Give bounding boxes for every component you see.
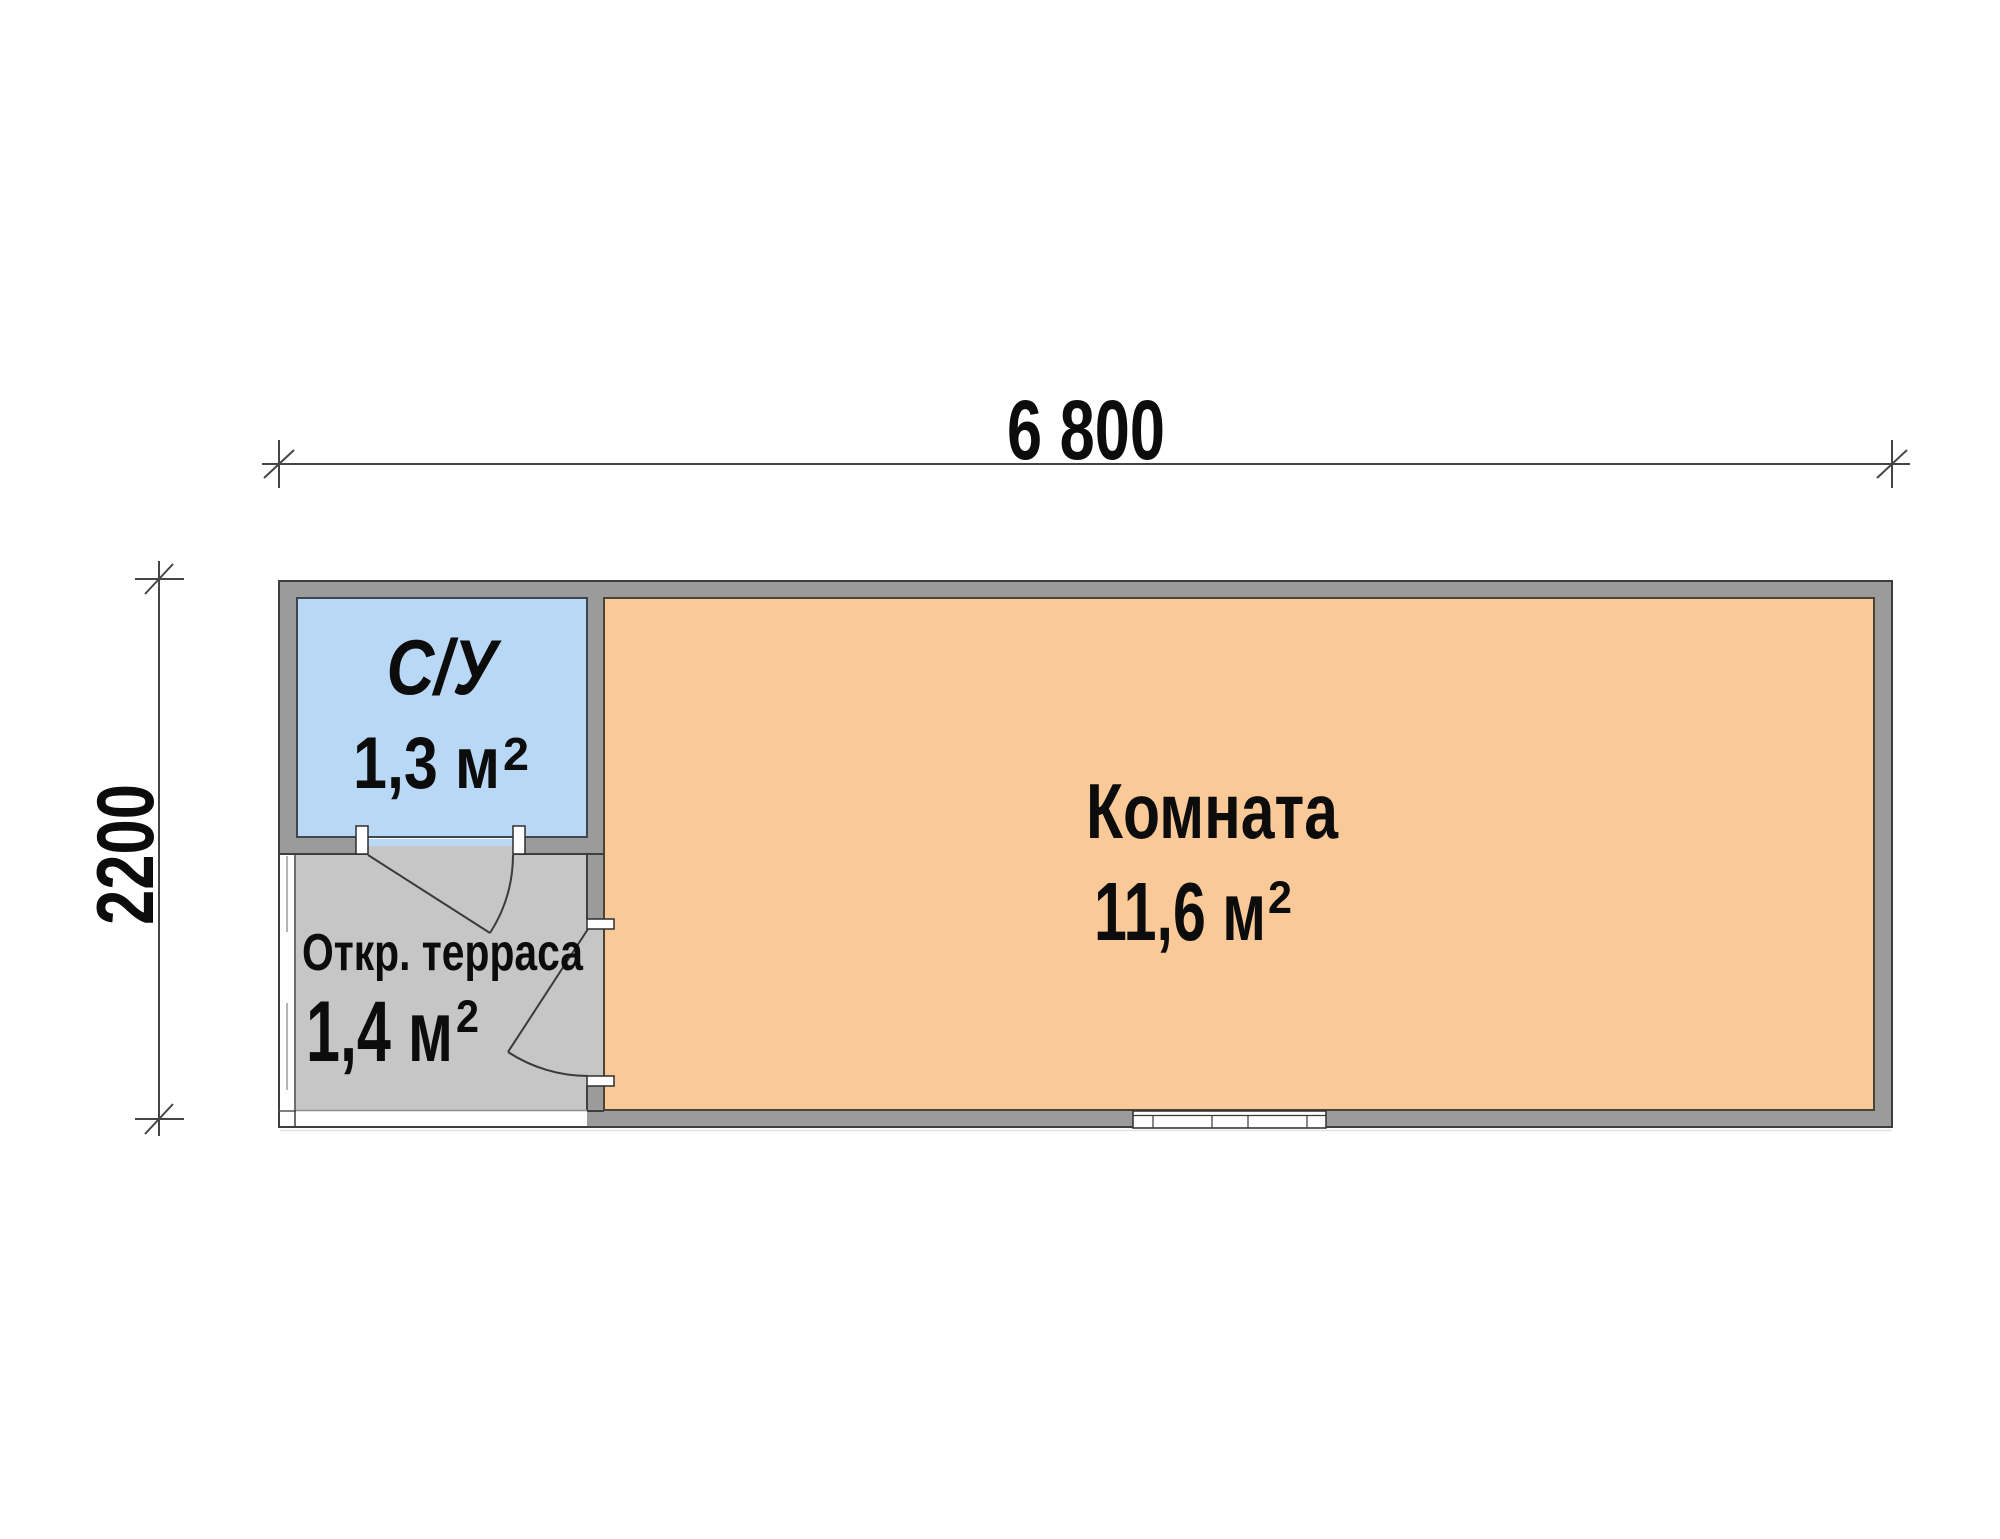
svg-text:2200: 2200 xyxy=(81,784,171,925)
svg-text:Откр. терраса: Откр. терраса xyxy=(302,924,584,982)
svg-text:1,4 м: 1,4 м xyxy=(306,984,453,1080)
svg-text:6 800: 6 800 xyxy=(1007,383,1165,477)
svg-text:2: 2 xyxy=(1268,872,1292,923)
svg-text:2: 2 xyxy=(503,728,529,780)
svg-text:2: 2 xyxy=(456,991,479,1042)
svg-text:1,3 м: 1,3 м xyxy=(353,723,500,804)
svg-text:С/У: С/У xyxy=(387,623,502,711)
svg-text:Комната: Комната xyxy=(1086,767,1338,855)
svg-text:11,6 м: 11,6 м xyxy=(1094,865,1266,958)
